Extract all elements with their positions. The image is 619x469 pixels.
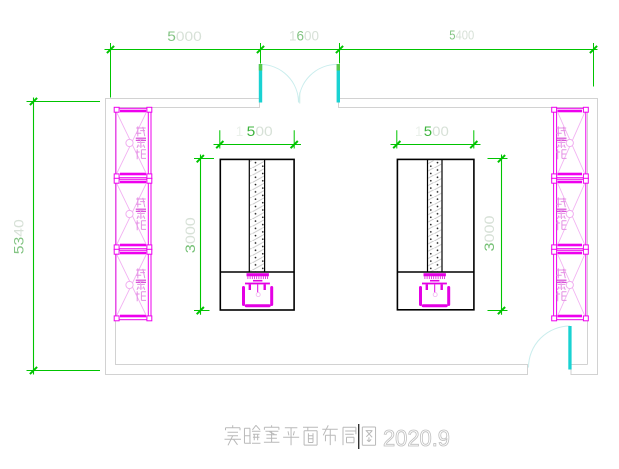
- svg-text:1: 1: [236, 124, 244, 139]
- svg-text:5000: 5000: [167, 28, 202, 44]
- svg-text:2020.9: 2020.9: [383, 425, 450, 451]
- svg-text:500: 500: [247, 124, 273, 139]
- svg-text:5400: 5400: [449, 28, 474, 43]
- svg-text:3000: 3000: [183, 217, 198, 253]
- svg-text:1: 1: [415, 124, 423, 139]
- svg-text:1600: 1600: [289, 28, 319, 44]
- svg-text:5340: 5340: [12, 219, 27, 254]
- svg-text:3000: 3000: [482, 216, 497, 252]
- svg-text:500: 500: [424, 124, 449, 139]
